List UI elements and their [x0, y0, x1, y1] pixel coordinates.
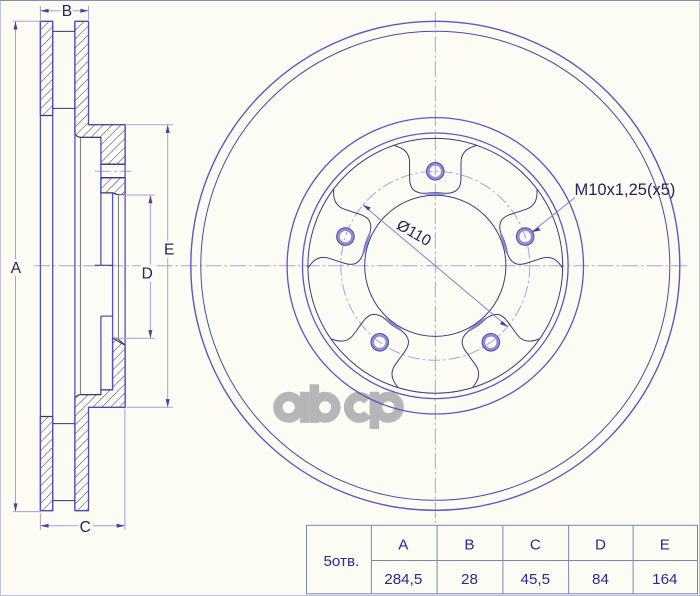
svg-text:Ø110: Ø110: [394, 217, 435, 250]
svg-text:164: 164: [652, 571, 677, 588]
svg-text:B: B: [464, 536, 474, 553]
svg-text:B: B: [62, 3, 72, 20]
svg-text:A: A: [398, 536, 409, 553]
svg-text:E: E: [660, 536, 670, 553]
svg-text:D: D: [595, 536, 606, 553]
svg-text:5отв.: 5отв.: [323, 553, 359, 570]
svg-text:28: 28: [461, 571, 478, 588]
svg-text:M10x1,25(x5): M10x1,25(x5): [575, 181, 676, 199]
svg-text:45,5: 45,5: [521, 571, 551, 588]
svg-text:284,5: 284,5: [384, 571, 422, 588]
svg-text:E: E: [164, 242, 174, 259]
svg-text:D: D: [142, 265, 153, 282]
svg-text:84: 84: [592, 571, 609, 588]
svg-text:A: A: [11, 260, 22, 277]
svg-text:C: C: [80, 519, 91, 536]
svg-text:C: C: [530, 536, 541, 553]
